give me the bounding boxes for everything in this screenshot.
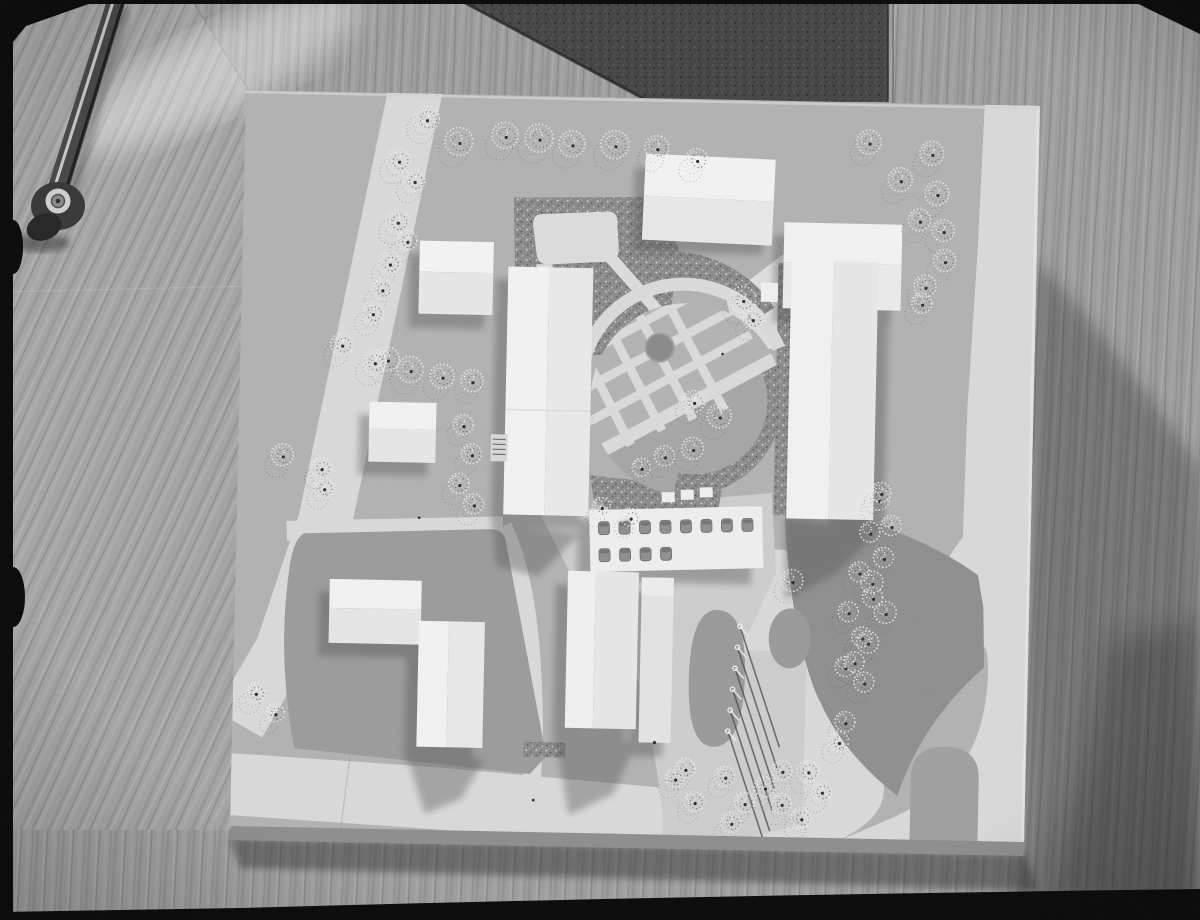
film-grain [0, 0, 1200, 920]
photograph: Black-and-white overhead photograph of a… [0, 0, 1200, 920]
